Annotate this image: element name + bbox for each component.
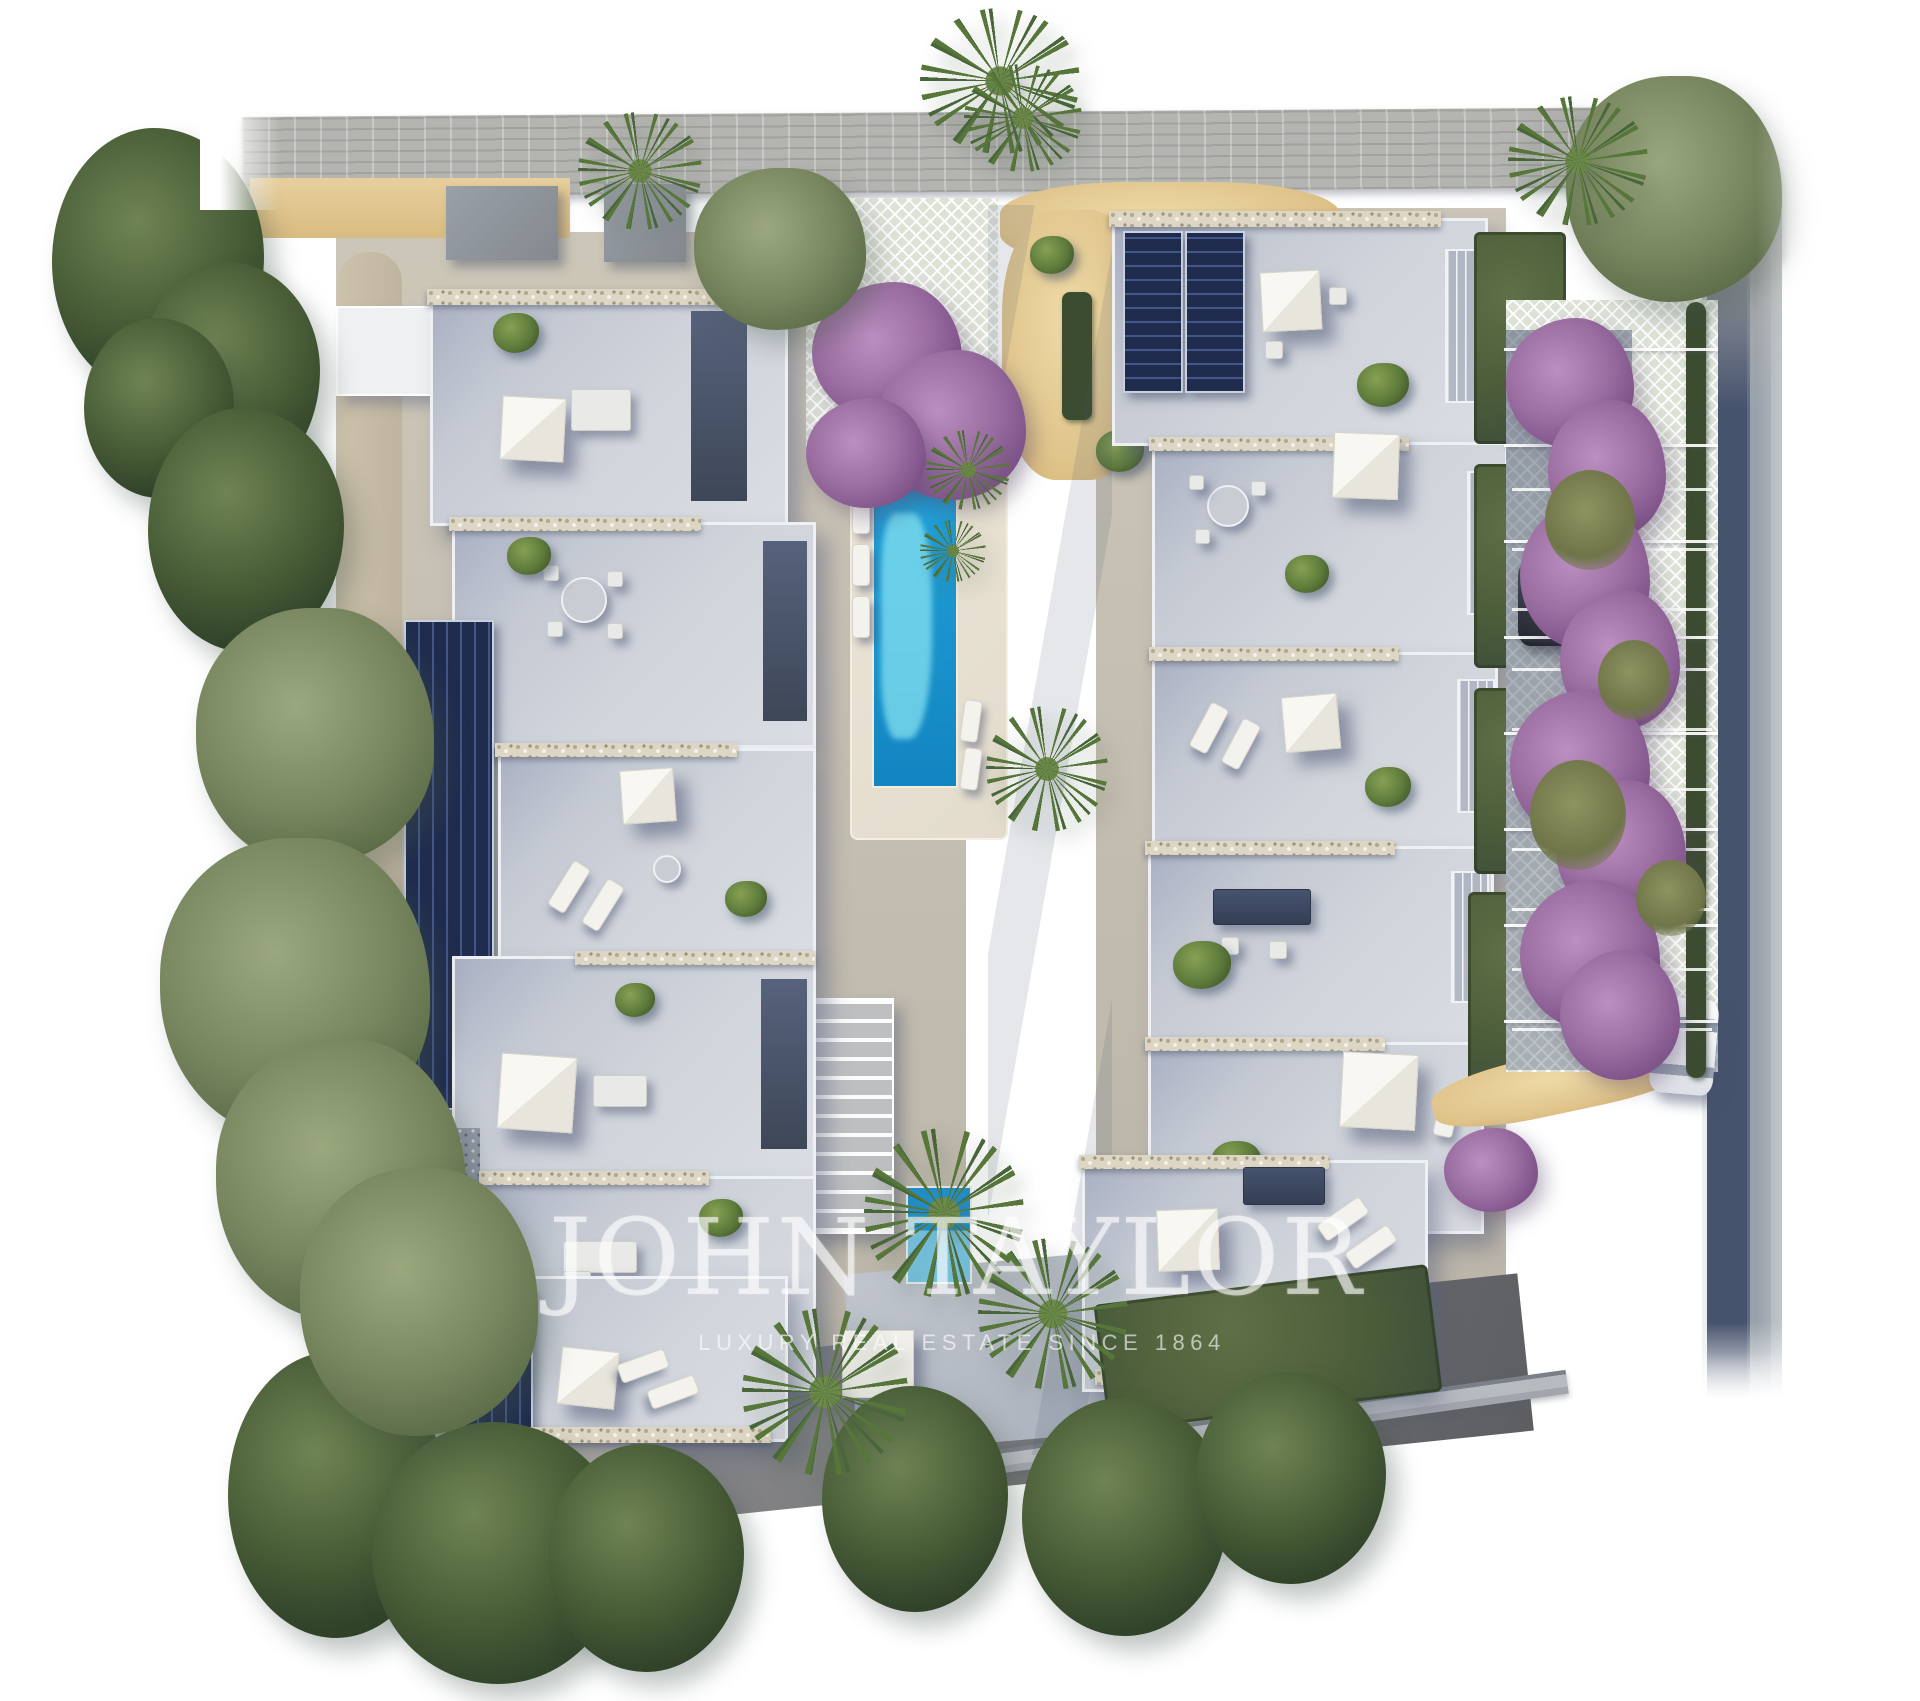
villa-annex <box>336 306 436 396</box>
gabion-parapet <box>1149 647 1399 661</box>
villa <box>1152 442 1508 656</box>
bougainvillea-canopy <box>806 398 926 508</box>
sun-lounger <box>547 860 592 915</box>
outdoor-chair <box>1189 475 1204 490</box>
outdoor-chair <box>1195 529 1210 544</box>
gabion-parapet <box>1145 841 1395 855</box>
pine-tree <box>1196 1372 1386 1584</box>
outdoor-chair <box>607 571 623 587</box>
dining-table <box>561 577 607 623</box>
patio-umbrella <box>1259 269 1322 332</box>
gabion-parapet <box>1109 211 1441 227</box>
entrance-wall <box>446 186 558 260</box>
shrub <box>1530 760 1626 870</box>
villa <box>452 522 816 748</box>
shrub <box>1636 860 1706 936</box>
palm-tree <box>920 520 986 582</box>
patio-umbrella <box>556 1346 620 1410</box>
sun-lounger <box>581 878 626 933</box>
patio-umbrella <box>1332 432 1400 500</box>
sun-lounger <box>646 1374 700 1410</box>
olive-tree <box>196 608 434 866</box>
patio-umbrella <box>619 767 677 825</box>
solar-panel-array <box>1185 231 1245 393</box>
terrace-plant <box>493 313 539 353</box>
outdoor-chair <box>547 621 563 637</box>
olive-tree <box>694 168 866 330</box>
villa <box>1148 846 1494 1048</box>
pine-tree <box>1022 1398 1228 1636</box>
palm-tree <box>978 1238 1128 1390</box>
aerial-render-scene: JOHN TAYLOR LUXURY REAL ESTATE SINCE 186… <box>0 0 1920 1701</box>
patio-umbrella <box>1339 1051 1419 1131</box>
outdoor-chair <box>1251 481 1266 496</box>
sun-lounger <box>1344 1224 1398 1270</box>
shrub <box>1545 470 1635 570</box>
patio-umbrella <box>499 395 566 462</box>
villa <box>1112 218 1488 446</box>
gabion-parapet <box>495 743 737 757</box>
outdoor-chair <box>1265 341 1283 359</box>
villa-courtyard <box>761 979 807 1149</box>
sun-lounger <box>616 1348 670 1384</box>
gabion-parapet <box>449 517 701 531</box>
olive-tree <box>300 1168 538 1436</box>
outdoor-sofa-navy <box>1213 889 1311 925</box>
villa <box>1152 652 1498 852</box>
terrace-plant <box>1173 941 1231 989</box>
terrace-plant <box>725 881 767 917</box>
palm-tree <box>926 430 1010 510</box>
palm-tree <box>578 112 702 230</box>
terrace-plant <box>699 1199 743 1237</box>
villa-courtyard <box>691 311 747 501</box>
patio-umbrella <box>1281 693 1342 754</box>
bougainvillea-canopy <box>1560 950 1680 1080</box>
pine-tree <box>548 1444 744 1672</box>
gabion-parapet <box>479 1171 709 1185</box>
villa-courtyard <box>763 541 807 721</box>
side-table <box>653 855 681 883</box>
outdoor-sofa <box>563 1241 637 1273</box>
shrub <box>1598 640 1670 720</box>
palm-tree <box>964 64 1082 172</box>
palm-tree <box>1508 96 1648 226</box>
lap-pool <box>872 470 958 788</box>
sun-lounger <box>852 596 870 638</box>
palm-tree <box>742 1308 908 1476</box>
gabion-parapet <box>1145 1037 1385 1051</box>
outdoor-sofa <box>571 389 631 431</box>
palm-tree <box>986 706 1108 832</box>
dining-table <box>1207 485 1249 527</box>
sun-lounger <box>1220 717 1261 771</box>
solar-panel-array <box>1123 231 1183 393</box>
gabion-parapet <box>427 289 739 305</box>
bougainvillea-canopy <box>1444 1128 1538 1212</box>
outdoor-chair <box>1269 941 1287 959</box>
sun-lounger <box>1188 701 1229 755</box>
villa <box>430 296 788 526</box>
outdoor-sofa-navy <box>1243 1167 1325 1205</box>
terrace-plant <box>1285 555 1329 593</box>
outdoor-chair <box>607 623 623 639</box>
sun-lounger <box>852 544 870 586</box>
terrace-plant <box>615 983 655 1017</box>
gabion-parapet <box>575 951 815 965</box>
outdoor-chair <box>1329 287 1347 305</box>
terrace-plant <box>1365 767 1411 807</box>
patio-umbrella <box>1156 1208 1220 1272</box>
patio-umbrella <box>496 1052 577 1133</box>
villa <box>498 748 816 960</box>
villa <box>452 956 816 1180</box>
outdoor-sofa <box>593 1075 647 1107</box>
roadside-hedge <box>1686 302 1706 1078</box>
terrace-plant <box>1357 363 1409 407</box>
